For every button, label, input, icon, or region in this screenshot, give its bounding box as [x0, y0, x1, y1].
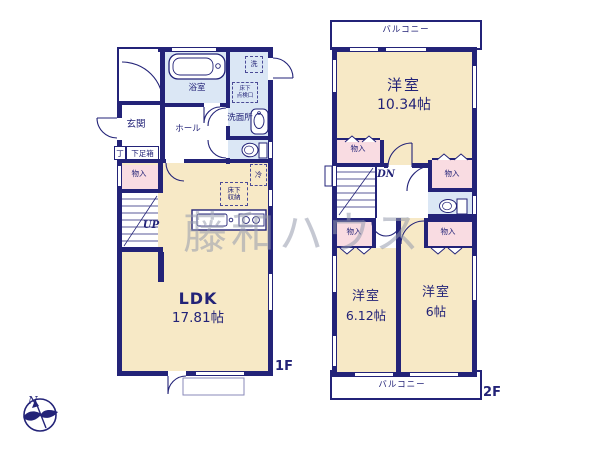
wall [165, 103, 204, 107]
room-porch-1f [117, 47, 165, 105]
room-label-entrance: 玄関 [116, 120, 156, 130]
wall [117, 189, 163, 193]
room-size-bedroom-large: 10.34帖 [364, 98, 444, 113]
window [332, 336, 337, 366]
wall [117, 247, 163, 252]
room-label-washroom: 洗面所 [218, 114, 262, 123]
window [355, 372, 393, 377]
balcony-label-top: バルコニー [356, 26, 456, 35]
window [332, 60, 337, 92]
wall [424, 218, 472, 222]
wall [226, 52, 230, 108]
closet-label-a: 物入 [340, 145, 376, 153]
window [472, 256, 477, 300]
fridge-label: 冷 [255, 171, 262, 179]
floor-plan-canvas: N 洗 床下 点検口 床下 収納 冷 丁 下足箱 玄関 ホール 浴室 洗面所 物… [0, 0, 600, 450]
balcony-label-bottom: バルコニー [352, 381, 452, 390]
wall [158, 252, 164, 282]
window-bay [325, 166, 332, 186]
compass-north-label: N [27, 394, 38, 407]
closet-label-d: 物入 [430, 228, 466, 236]
room-size-bedroom-mid: 6.12帖 [331, 309, 401, 322]
window [332, 166, 337, 186]
floor-label-2f: 2F [479, 386, 505, 400]
wall [117, 101, 122, 376]
room-label-storage-1f: 物入 [119, 170, 159, 178]
room-size-bedroom-small: 6帖 [416, 305, 456, 318]
window [472, 66, 477, 108]
window [350, 47, 378, 52]
underfloor-hatch: 床下 点検口 [232, 82, 258, 103]
shoe-counter-label: 丁 [116, 148, 124, 159]
closet-line [432, 158, 472, 160]
washer-label: 洗 [251, 60, 258, 68]
washer-space: 洗 [245, 56, 263, 73]
closet-label-b: 物入 [434, 170, 470, 178]
window [268, 274, 273, 310]
door-opening [168, 371, 186, 376]
room-label-bedroom-small: 洋室 [406, 286, 466, 300]
fridge-space: 冷 [250, 164, 267, 186]
wall [228, 136, 268, 140]
wall [384, 163, 388, 168]
floor-label-1f: 1F [271, 360, 297, 374]
room-label-ldk: LDK [168, 291, 228, 308]
window [196, 371, 244, 376]
room-size-ldk: 17.81帖 [158, 311, 238, 325]
underfloor-hatch-line2: 点検口 [237, 93, 254, 99]
room-label-bedroom-large: 洋室 [374, 78, 434, 94]
closet-line [337, 138, 380, 140]
wall [424, 218, 428, 248]
stairs-down-label: DN [374, 170, 398, 181]
company-watermark: 藤和ハウス [183, 197, 423, 261]
room-bathroom-1f [165, 52, 226, 103]
terrace-step [183, 378, 244, 395]
window [410, 372, 458, 377]
room-label-bathroom: 浴室 [177, 84, 217, 93]
shoe-box-label: 下足箱 [131, 148, 154, 159]
wall [184, 159, 268, 163]
door-opening [268, 58, 273, 80]
window [172, 47, 216, 52]
window [386, 47, 426, 52]
compass: N [23, 394, 58, 431]
door-arc [97, 118, 117, 138]
door-arc [273, 58, 293, 78]
window [332, 256, 337, 292]
stairs-up-label: UP [138, 221, 164, 232]
wall [117, 101, 165, 105]
wall [117, 371, 273, 376]
room-label-hall: ホール [166, 125, 210, 134]
window [268, 142, 273, 158]
room-label-bedroom-mid: 洋室 [336, 290, 396, 304]
door-arc [168, 376, 186, 394]
window [472, 196, 477, 214]
door-arc [208, 140, 226, 158]
shoe-counter-box: 丁 [114, 146, 126, 160]
closet-line [428, 246, 472, 248]
shoe-box: 下足箱 [126, 146, 159, 160]
wall [428, 188, 472, 192]
